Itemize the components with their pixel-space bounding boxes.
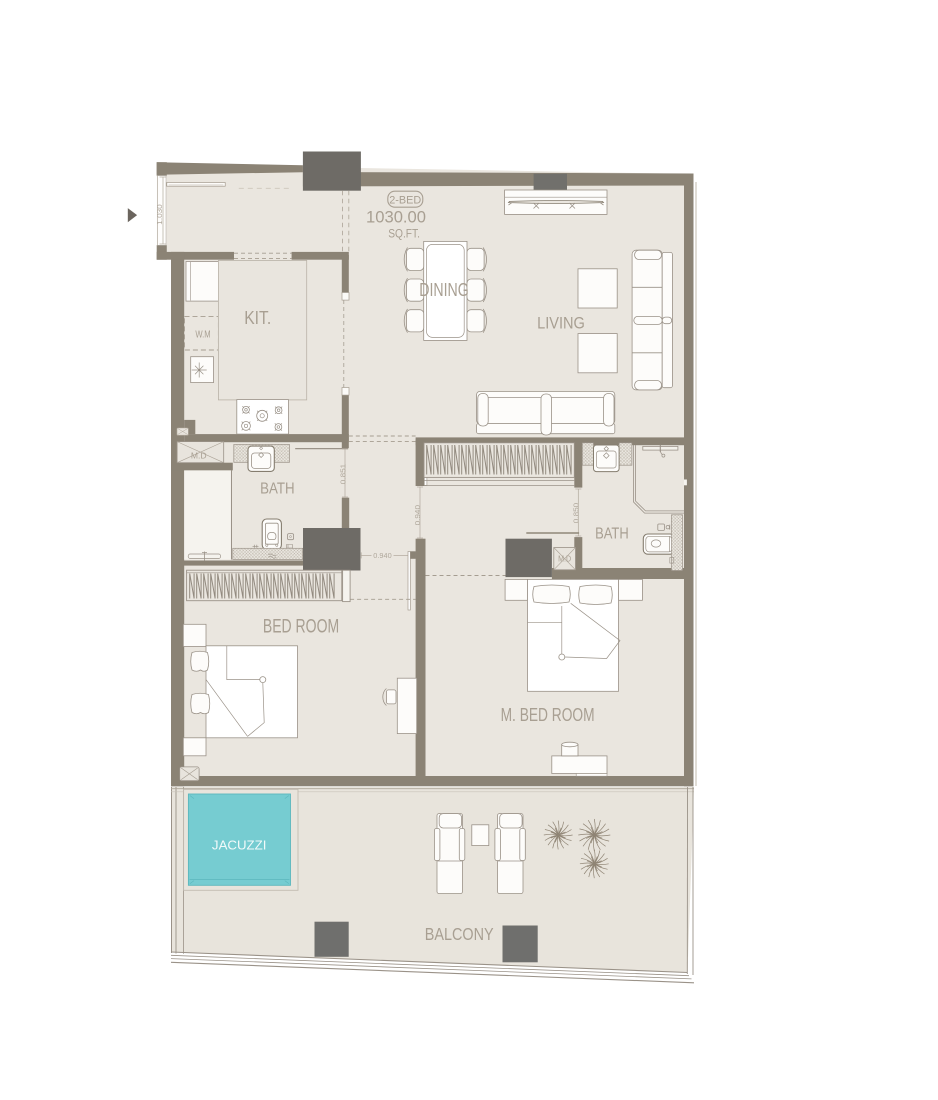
svg-text:BED ROOM: BED ROOM xyxy=(263,617,339,638)
svg-text:LIVING: LIVING xyxy=(537,314,585,333)
svg-text:2-BED: 2-BED xyxy=(389,195,421,207)
svg-text:M.D: M.D xyxy=(558,555,571,564)
svg-text:M. BED ROOM: M. BED ROOM xyxy=(501,704,595,725)
svg-text:JACUZZI: JACUZZI xyxy=(212,837,267,852)
svg-text:BATH: BATH xyxy=(595,526,629,543)
svg-text:BATH: BATH xyxy=(260,481,295,498)
svg-text:0.850: 0.850 xyxy=(572,503,581,523)
svg-text:0.851: 0.851 xyxy=(338,464,347,484)
svg-text:1030.00: 1030.00 xyxy=(366,207,426,226)
svg-text:DINING: DINING xyxy=(419,280,469,300)
svg-text:KIT.: KIT. xyxy=(244,308,271,328)
svg-text:SQ.FT.: SQ.FT. xyxy=(388,226,420,240)
svg-text:0.940: 0.940 xyxy=(413,505,422,525)
svg-text:BALCONY: BALCONY xyxy=(425,924,494,944)
svg-text:0.940: 0.940 xyxy=(373,551,391,560)
svg-text:1.030: 1.030 xyxy=(155,204,164,224)
svg-text:M.D: M.D xyxy=(191,452,207,461)
svg-text:W.M: W.M xyxy=(195,330,210,341)
